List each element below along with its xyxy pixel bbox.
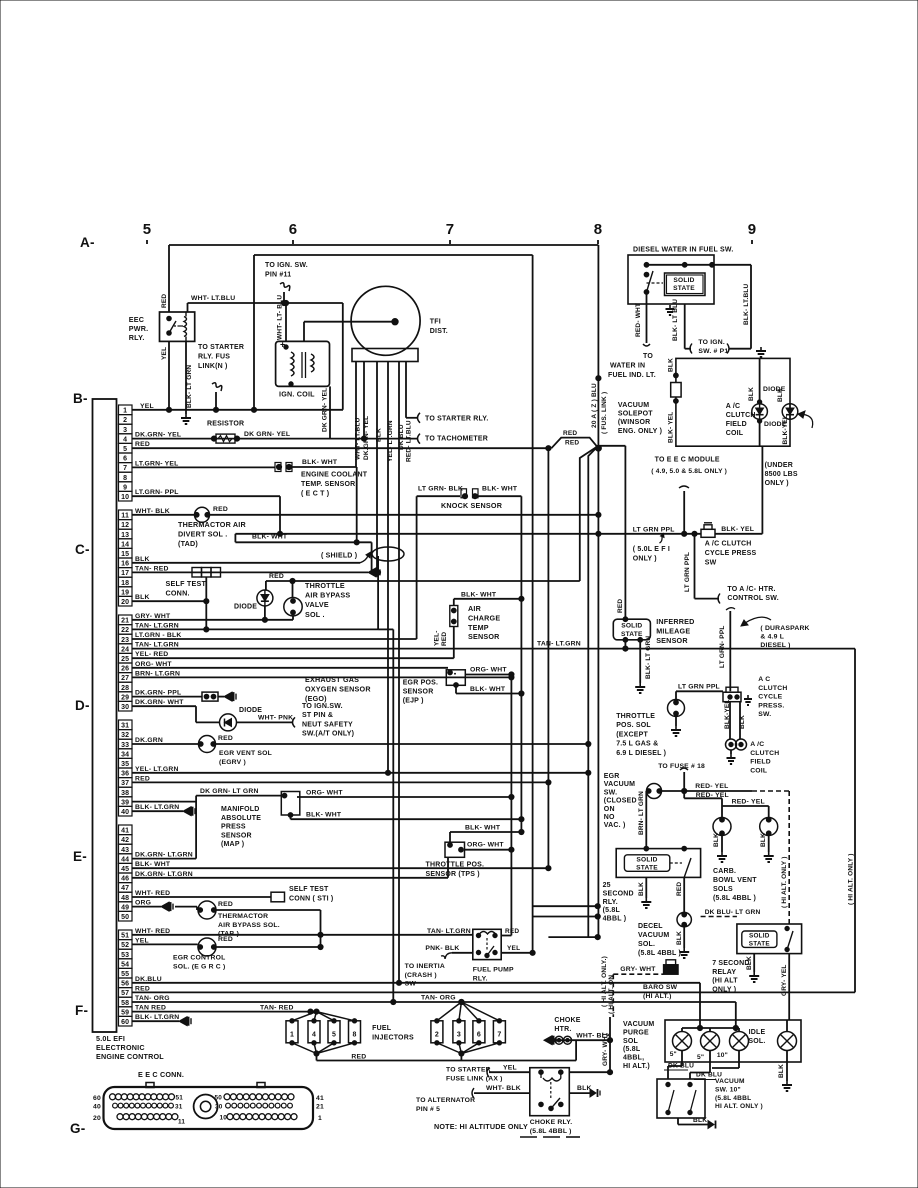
svg-text:SENSOR: SENSOR <box>403 689 434 696</box>
svg-text:50: 50 <box>121 914 129 921</box>
svg-text:6: 6 <box>289 221 298 238</box>
svg-text:DIVERT SOL .: DIVERT SOL . <box>178 530 227 539</box>
svg-text:TO STARTER: TO STARTER <box>446 1067 491 1074</box>
svg-text:TO IGN.SW.: TO IGN.SW. <box>302 703 343 710</box>
svg-text:( HI ALT. ONLY ): ( HI ALT. ONLY ) <box>848 853 855 905</box>
svg-text:ONLY ): ONLY ) <box>712 986 736 993</box>
svg-text:( DURASPARK: ( DURASPARK <box>760 625 809 632</box>
svg-text:BLK-YEL: BLK-YEL <box>782 415 789 445</box>
svg-text:RED: RED <box>617 599 624 613</box>
svg-text:LT GRN PPL: LT GRN PPL <box>633 527 675 534</box>
svg-text:7: 7 <box>446 221 455 238</box>
svg-text:RESISTOR: RESISTOR <box>207 421 244 428</box>
svg-text:51: 51 <box>176 1095 184 1102</box>
svg-text:THERMACTOR AIR: THERMACTOR AIR <box>178 520 246 529</box>
svg-text:( HI ALT. ONLY ): ( HI ALT. ONLY ) <box>781 856 788 908</box>
svg-text:(HI ALT.): (HI ALT.) <box>643 993 672 1000</box>
svg-text:DK.GRN- LT.GRN: DK.GRN- LT.GRN <box>135 871 193 878</box>
svg-text:1: 1 <box>318 1115 322 1122</box>
svg-text:EXHAUST GAS: EXHAUST GAS <box>305 675 359 684</box>
svg-text:18: 18 <box>121 580 129 587</box>
svg-text:6: 6 <box>477 1032 481 1039</box>
svg-text:SW.: SW. <box>758 711 771 718</box>
svg-text:RED: RED <box>676 882 683 896</box>
svg-text:EEC: EEC <box>129 315 144 324</box>
svg-text:CONTROL SW.: CONTROL SW. <box>727 595 778 602</box>
svg-text:SOLID: SOLID <box>621 623 642 630</box>
svg-text:RED: RED <box>505 928 519 935</box>
svg-text:PURGE: PURGE <box>623 1029 649 1036</box>
svg-text:F-: F- <box>75 1003 88 1018</box>
svg-text:16: 16 <box>121 561 129 568</box>
svg-text:PRESS: PRESS <box>221 824 246 831</box>
svg-text:(EGO): (EGO) <box>305 694 327 703</box>
svg-text:VACUUM: VACUUM <box>604 781 635 788</box>
svg-text:TO ALTERNATOR: TO ALTERNATOR <box>416 1097 475 1104</box>
svg-text:WHT- BLK: WHT- BLK <box>486 1085 521 1092</box>
svg-text:RED: RED <box>135 775 150 782</box>
svg-text:(EJP ): (EJP ) <box>403 698 424 705</box>
svg-text:AIR BYPASS: AIR BYPASS <box>305 591 350 600</box>
svg-text:DIODE: DIODE <box>234 604 257 611</box>
svg-text:46: 46 <box>121 876 129 883</box>
svg-text:5": 5" <box>697 1054 704 1061</box>
svg-text:DK.GRN- WHT: DK.GRN- WHT <box>135 699 184 706</box>
svg-text:10": 10" <box>717 1052 728 1059</box>
svg-text:BLK- LT.BLU: BLK- LT.BLU <box>743 283 750 325</box>
svg-text:& 4.9 L: & 4.9 L <box>760 634 784 641</box>
svg-text:30: 30 <box>121 704 129 711</box>
svg-text:8: 8 <box>123 475 127 482</box>
svg-text:10: 10 <box>121 494 129 501</box>
svg-text:40: 40 <box>93 1104 101 1111</box>
svg-text:(HI ALT: (HI ALT <box>712 978 738 985</box>
svg-text:RLY.: RLY. <box>603 899 618 906</box>
svg-text:BLK: BLK <box>577 1085 592 1092</box>
svg-text:FIELD: FIELD <box>750 759 771 766</box>
svg-text:ENG. ONLY ): ENG. ONLY ) <box>618 428 662 435</box>
svg-text:TO STARTER: TO STARTER <box>198 344 244 351</box>
svg-text:20 A ( Z ) BLU: 20 A ( Z ) BLU <box>591 383 598 428</box>
svg-text:56: 56 <box>121 981 129 988</box>
svg-text:48: 48 <box>121 895 129 902</box>
svg-text:43: 43 <box>121 847 129 854</box>
svg-text:ORG- WHT: ORG- WHT <box>470 667 507 674</box>
svg-text:SENSOR: SENSOR <box>656 636 688 645</box>
svg-text:BLK- WHT: BLK- WHT <box>482 486 518 493</box>
svg-text:BOWL VENT: BOWL VENT <box>713 877 757 884</box>
svg-text:(TAD): (TAD) <box>178 539 198 548</box>
svg-text:ORG: ORG <box>135 900 151 907</box>
svg-text:IDLE: IDLE <box>749 1029 766 1036</box>
svg-text:59: 59 <box>121 1009 129 1016</box>
svg-text:EGR: EGR <box>604 773 620 780</box>
svg-text:WHT- RED: WHT- RED <box>135 890 170 897</box>
svg-text:A /C: A /C <box>750 741 764 748</box>
svg-text:DK GRN- LT GRN: DK GRN- LT GRN <box>200 788 259 795</box>
svg-text:TO FUSE # 18: TO FUSE # 18 <box>658 763 705 770</box>
svg-text:BARO SW: BARO SW <box>643 984 678 991</box>
svg-text:47: 47 <box>121 885 129 892</box>
svg-text:29: 29 <box>121 694 129 701</box>
svg-text:TO TACHOMETER: TO TACHOMETER <box>425 436 488 443</box>
svg-text:(5.8L 4BBL ): (5.8L 4BBL ) <box>713 895 756 902</box>
svg-text:STATE: STATE <box>673 285 695 292</box>
svg-text:2: 2 <box>435 1032 439 1039</box>
svg-text:C-: C- <box>75 542 90 557</box>
svg-text:SELF TEST: SELF TEST <box>289 886 329 893</box>
svg-text:BLK: BLK <box>777 388 784 402</box>
svg-text:DIESEL WATER IN FUEL SW.: DIESEL WATER IN FUEL SW. <box>633 247 733 254</box>
svg-text:BLK- WHT: BLK- WHT <box>135 861 171 868</box>
svg-text:LT.GRN- PPL: LT.GRN- PPL <box>135 489 179 496</box>
svg-text:KNOCK SENSOR: KNOCK SENSOR <box>441 501 503 510</box>
svg-text:(5.8L: (5.8L <box>603 907 621 914</box>
svg-text:CARB.: CARB. <box>713 868 736 875</box>
svg-text:YEL- RED: YEL- RED <box>135 651 168 658</box>
svg-text:VACUUM: VACUUM <box>618 402 649 409</box>
svg-text:SW. # P1: SW. # P1 <box>698 348 728 355</box>
svg-text:RLY. FUS: RLY. FUS <box>198 353 230 360</box>
svg-text:60: 60 <box>121 1019 129 1026</box>
svg-text:DK.GRN: DK.GRN <box>135 737 163 744</box>
svg-text:(MAP ): (MAP ) <box>221 841 244 848</box>
svg-text:BLK- LT.GRN: BLK- LT.GRN <box>135 804 179 811</box>
svg-text:TO A /C- HTR.: TO A /C- HTR. <box>727 586 775 593</box>
svg-text:11: 11 <box>121 513 129 520</box>
svg-text:34: 34 <box>121 751 129 758</box>
svg-text:SOL. (E G R C ): SOL. (E G R C ) <box>173 964 225 971</box>
svg-text:A-: A- <box>80 235 95 250</box>
svg-text:BLK- WHT: BLK- WHT <box>306 812 342 819</box>
svg-text:( 5.0L E F I: ( 5.0L E F I <box>633 546 670 553</box>
svg-text:DK GRN- YEL: DK GRN- YEL <box>244 431 290 438</box>
svg-text:WHT- BLK: WHT- BLK <box>135 508 170 515</box>
svg-text:DK BLU: DK BLU <box>668 1063 694 1070</box>
svg-text:LT GRN PPL: LT GRN PPL <box>684 552 691 592</box>
svg-text:TAN- LT.GRN: TAN- LT.GRN <box>427 928 471 935</box>
svg-text:21: 21 <box>121 618 129 625</box>
svg-text:RED- YEL: RED- YEL <box>696 792 729 799</box>
svg-text:49: 49 <box>121 904 129 911</box>
svg-text:BLK: BLK <box>760 833 767 847</box>
svg-text:TAN- ORG: TAN- ORG <box>135 995 170 1002</box>
svg-text:42: 42 <box>121 837 129 844</box>
svg-text:TO STARTER RLY.: TO STARTER RLY. <box>425 416 489 423</box>
svg-text:B-: B- <box>73 391 88 406</box>
svg-text:ENGINE COOLANT: ENGINE COOLANT <box>301 472 368 479</box>
svg-text:20: 20 <box>93 1115 101 1122</box>
svg-text:STATE: STATE <box>621 631 643 638</box>
svg-text:VACUUM: VACUUM <box>623 1021 654 1028</box>
svg-text:SECOND: SECOND <box>603 890 634 897</box>
svg-text:INFERRED: INFERRED <box>656 617 694 626</box>
svg-text:ON: ON <box>604 806 615 813</box>
svg-text:SOLID: SOLID <box>749 933 770 940</box>
svg-text:28: 28 <box>121 685 129 692</box>
svg-text:1: 1 <box>290 1032 294 1039</box>
svg-text:7.5 L GAS &: 7.5 L GAS & <box>616 741 658 748</box>
svg-text:5": 5" <box>670 1051 677 1058</box>
svg-text:(WINSOR: (WINSOR <box>618 419 651 426</box>
svg-text:32: 32 <box>121 732 129 739</box>
svg-text:A /C: A /C <box>726 403 741 410</box>
svg-text:FUEL IND. LT.: FUEL IND. LT. <box>608 372 656 379</box>
svg-text:NOTE: HI ALTITUDE ONLY: NOTE: HI ALTITUDE ONLY <box>434 1122 528 1131</box>
svg-text:YEL: YEL <box>507 945 520 952</box>
svg-text:SW. 10": SW. 10" <box>715 1086 741 1093</box>
svg-text:DK.GRN- LT.GRN: DK.GRN- LT.GRN <box>135 852 193 859</box>
svg-text:44: 44 <box>121 856 129 863</box>
svg-text:SOLEPOT: SOLEPOT <box>618 411 653 418</box>
svg-text:( SHIELD ): ( SHIELD ) <box>321 553 357 560</box>
svg-text:30: 30 <box>215 1103 223 1110</box>
svg-text:(5.8L: (5.8L <box>623 1046 641 1053</box>
svg-text:FUEL: FUEL <box>372 1025 392 1032</box>
svg-text:HI ALT. ONLY ): HI ALT. ONLY ) <box>715 1103 763 1110</box>
svg-text:CONN ( STI ): CONN ( STI ) <box>289 895 333 902</box>
svg-text:BLK: BLK <box>676 931 683 945</box>
svg-text:BLK- YEL: BLK- YEL <box>668 412 675 443</box>
svg-text:EGR POS.: EGR POS. <box>403 680 438 687</box>
svg-text:NO: NO <box>604 814 615 821</box>
svg-text:(EXCEPT: (EXCEPT <box>616 731 648 738</box>
svg-text:ELECTRONIC: ELECTRONIC <box>96 1043 145 1052</box>
svg-text:22: 22 <box>121 627 129 634</box>
svg-text:SOLS: SOLS <box>713 886 733 893</box>
svg-text:DK GRN- YEL: DK GRN- YEL <box>322 388 329 432</box>
svg-text:LT GRN PPL: LT GRN PPL <box>678 684 720 691</box>
svg-text:TO E E C MODULE: TO E E C MODULE <box>655 457 720 464</box>
svg-text:PWR.: PWR. <box>129 324 149 333</box>
svg-text:RED: RED <box>218 936 233 943</box>
svg-text:DECEL: DECEL <box>638 923 663 930</box>
svg-text:WATER IN: WATER IN <box>610 363 645 370</box>
svg-text:ORG- WHT: ORG- WHT <box>306 790 343 797</box>
svg-text:ORG- WHT: ORG- WHT <box>467 842 504 849</box>
svg-text:SOLID: SOLID <box>636 857 657 864</box>
svg-text:ONLY ): ONLY ) <box>765 480 789 487</box>
svg-text:7: 7 <box>123 465 127 472</box>
svg-text:(CLOSED: (CLOSED <box>604 798 637 805</box>
svg-text:WHT- PNK: WHT- PNK <box>258 715 293 722</box>
svg-text:A C: A C <box>758 676 770 683</box>
svg-text:5: 5 <box>123 446 127 453</box>
svg-text:10: 10 <box>220 1114 228 1121</box>
svg-text:TFI: TFI <box>430 319 441 326</box>
svg-text:DIESEL ): DIESEL ) <box>760 642 790 649</box>
svg-text:8: 8 <box>594 221 603 238</box>
svg-text:BLK- WHT: BLK- WHT <box>461 592 497 599</box>
svg-text:(EGRV ): (EGRV ) <box>219 759 246 766</box>
svg-text:D-: D- <box>75 698 90 713</box>
svg-text:YEL: YEL <box>140 403 154 410</box>
svg-text:STATE: STATE <box>636 865 658 872</box>
svg-text:SENSOR (TPS ): SENSOR (TPS ) <box>426 871 480 878</box>
svg-text:RELAY: RELAY <box>712 969 736 976</box>
svg-text:THERMACTOR: THERMACTOR <box>218 913 268 920</box>
svg-text:RED: RED <box>565 440 579 447</box>
svg-text:BRN- LT.GRN: BRN- LT.GRN <box>135 670 180 677</box>
svg-text:VALVE: VALVE <box>305 600 329 609</box>
svg-text:ST PIN &: ST PIN & <box>302 712 333 719</box>
svg-text:5.0L EFI: 5.0L EFI <box>96 1034 125 1043</box>
svg-text:SOL .: SOL . <box>305 610 325 619</box>
svg-text:ABSOLUTE: ABSOLUTE <box>221 815 261 822</box>
svg-text:LT GRN- BLK: LT GRN- BLK <box>418 486 463 493</box>
svg-text:51: 51 <box>121 933 129 940</box>
svg-text:EGR VENT SOL: EGR VENT SOL <box>219 750 272 757</box>
svg-text:TO IGN. SW.: TO IGN. SW. <box>265 262 308 269</box>
svg-text:53: 53 <box>121 952 129 959</box>
svg-text:9: 9 <box>123 484 127 491</box>
svg-text:BLK: BLK <box>739 715 746 729</box>
svg-text:TAN RED: TAN RED <box>135 1005 166 1012</box>
svg-text:DIST.: DIST. <box>430 328 448 335</box>
svg-text:27: 27 <box>121 675 129 682</box>
svg-text:DK.GRN- YEL: DK.GRN- YEL <box>135 432 181 439</box>
svg-text:TO: TO <box>643 353 653 360</box>
svg-text:9: 9 <box>748 221 757 238</box>
svg-text:36: 36 <box>121 771 129 778</box>
svg-text:POS. SOL: POS. SOL <box>616 722 651 729</box>
svg-text:6: 6 <box>123 456 127 463</box>
svg-text:E E C CONN.: E E C CONN. <box>138 1070 184 1079</box>
svg-text:4BBL ): 4BBL ) <box>603 916 627 923</box>
svg-text:45: 45 <box>121 866 129 873</box>
svg-text:PRESS.: PRESS. <box>758 702 784 709</box>
svg-text:CONN.: CONN. <box>166 589 190 598</box>
svg-text:GRY- YEL: GRY- YEL <box>781 964 788 996</box>
svg-text:CLUTCH: CLUTCH <box>758 685 787 692</box>
svg-text:BLK: BLK <box>693 1117 707 1124</box>
svg-text:31: 31 <box>175 1103 183 1110</box>
svg-text:21: 21 <box>316 1104 324 1111</box>
svg-text:(5.8L 4BBL ): (5.8L 4BBL ) <box>530 1128 572 1135</box>
svg-text:BLK: BLK <box>668 358 675 372</box>
svg-text:AIR BYPASS SOL.: AIR BYPASS SOL. <box>218 922 280 929</box>
svg-text:ENGINE CONTROL: ENGINE CONTROL <box>96 1052 164 1061</box>
svg-text:DK.GRN- PPL: DK.GRN- PPL <box>135 690 181 697</box>
svg-text:THROTTLE: THROTTLE <box>616 713 655 720</box>
svg-text:SENSOR: SENSOR <box>468 632 500 641</box>
svg-text:RED- LT.BLU: RED- LT.BLU <box>406 420 413 462</box>
svg-text:BLK: BLK <box>713 833 720 847</box>
svg-text:BLK- LT GRN: BLK- LT GRN <box>186 365 193 408</box>
svg-text:11: 11 <box>178 1119 185 1126</box>
svg-text:24: 24 <box>121 646 129 653</box>
svg-text:FUSE LINK (AX ): FUSE LINK (AX ) <box>446 1075 503 1082</box>
svg-text:(5.8L 4BBL: (5.8L 4BBL <box>715 1095 751 1102</box>
svg-text:YEL: YEL <box>503 1065 517 1072</box>
svg-text:7: 7 <box>497 1032 501 1039</box>
svg-text:4: 4 <box>312 1032 316 1039</box>
svg-text:1: 1 <box>123 408 127 415</box>
svg-text:SOL: SOL <box>623 1038 639 1045</box>
svg-text:RED: RED <box>218 901 233 908</box>
svg-text:DK BLU- LT GRN: DK BLU- LT GRN <box>705 909 761 916</box>
svg-text:40: 40 <box>121 809 129 816</box>
svg-text:SELF TEST: SELF TEST <box>166 579 207 588</box>
svg-text:( E C T ): ( E C T ) <box>301 490 329 497</box>
svg-text:60: 60 <box>93 1095 101 1102</box>
svg-text:NEUT SAFETY: NEUT SAFETY <box>302 721 353 728</box>
svg-text:RED: RED <box>441 632 448 646</box>
svg-text:26: 26 <box>121 666 129 673</box>
svg-text:54: 54 <box>121 961 129 968</box>
svg-text:SENSOR: SENSOR <box>221 832 252 839</box>
svg-text:( HI ALT. ON: ( HI ALT. ON <box>608 975 615 1014</box>
svg-text:RED: RED <box>351 1054 366 1061</box>
svg-text:3: 3 <box>123 427 127 434</box>
svg-text:25: 25 <box>121 656 129 663</box>
svg-text:39: 39 <box>121 799 129 806</box>
svg-text:CLUTCH: CLUTCH <box>750 750 779 757</box>
svg-text:FIELD: FIELD <box>726 421 747 428</box>
svg-text:TAN- RED: TAN- RED <box>135 565 169 572</box>
svg-text:57: 57 <box>121 990 129 997</box>
svg-text:BLK- LT GRN: BLK- LT GRN <box>645 636 652 679</box>
svg-text:13: 13 <box>121 532 129 539</box>
svg-text:17: 17 <box>121 570 129 577</box>
svg-text:PNK- BLK: PNK- BLK <box>425 945 459 952</box>
svg-text:GRY- WHT: GRY- WHT <box>620 966 656 973</box>
svg-text:MILEAGE: MILEAGE <box>656 626 690 635</box>
svg-text:YEL: YEL <box>135 937 149 944</box>
svg-text:BRN- LT GRN: BRN- LT GRN <box>638 791 645 835</box>
svg-text:CHOKE: CHOKE <box>554 1017 580 1024</box>
svg-text:RED: RED <box>135 985 150 992</box>
svg-text:BLK: BLK <box>135 556 150 563</box>
svg-text:TEMP. SENSOR: TEMP. SENSOR <box>301 481 355 488</box>
svg-text:PIN #11: PIN #11 <box>265 271 291 278</box>
svg-text:BLK: BLK <box>778 1064 785 1078</box>
svg-text:LT GRN- PPL: LT GRN- PPL <box>719 625 726 668</box>
svg-text:3: 3 <box>457 1032 461 1039</box>
svg-text:23: 23 <box>121 637 129 644</box>
svg-text:HTR.: HTR. <box>554 1026 571 1033</box>
svg-text:(UNDER: (UNDER <box>765 462 793 469</box>
svg-text:RED: RED <box>161 294 168 308</box>
svg-text:(5.8L 4BBL ): (5.8L 4BBL ) <box>638 950 681 957</box>
svg-text:EGR CONTROL: EGR CONTROL <box>173 955 225 962</box>
svg-text:STATE: STATE <box>749 941 771 948</box>
svg-text:OXYGEN SENSOR: OXYGEN SENSOR <box>305 685 371 694</box>
svg-text:5: 5 <box>332 1032 336 1039</box>
svg-text:4BBL,: 4BBL, <box>623 1055 644 1062</box>
svg-text:SW.: SW. <box>604 789 617 796</box>
svg-text:CYCLE PRESS: CYCLE PRESS <box>705 550 757 557</box>
svg-text:RED: RED <box>563 430 577 437</box>
svg-text:GRY- WHT: GRY- WHT <box>602 1032 609 1066</box>
svg-text:14: 14 <box>121 541 129 548</box>
svg-text:RLY.: RLY. <box>473 975 488 982</box>
svg-text:52: 52 <box>121 942 129 949</box>
svg-text:WHT- LT.BLU: WHT- LT.BLU <box>191 295 235 302</box>
svg-text:DK.BLU: DK.BLU <box>135 976 162 983</box>
svg-text:BLK: BLK <box>135 594 150 601</box>
svg-text:BLK-YEL: BLK-YEL <box>724 699 731 729</box>
svg-text:WHT- LT- BLU: WHT- LT- BLU <box>277 295 284 340</box>
svg-text:AIR: AIR <box>468 604 482 613</box>
svg-text:37: 37 <box>121 780 129 787</box>
svg-text:35: 35 <box>121 761 129 768</box>
svg-text:4: 4 <box>123 436 127 443</box>
svg-text:TO INERTIA: TO INERTIA <box>405 963 445 970</box>
svg-text:( FUS. LINK ): ( FUS. LINK ) <box>601 392 608 434</box>
svg-text:55: 55 <box>121 971 129 978</box>
svg-text:8500 LBS: 8500 LBS <box>765 471 798 478</box>
